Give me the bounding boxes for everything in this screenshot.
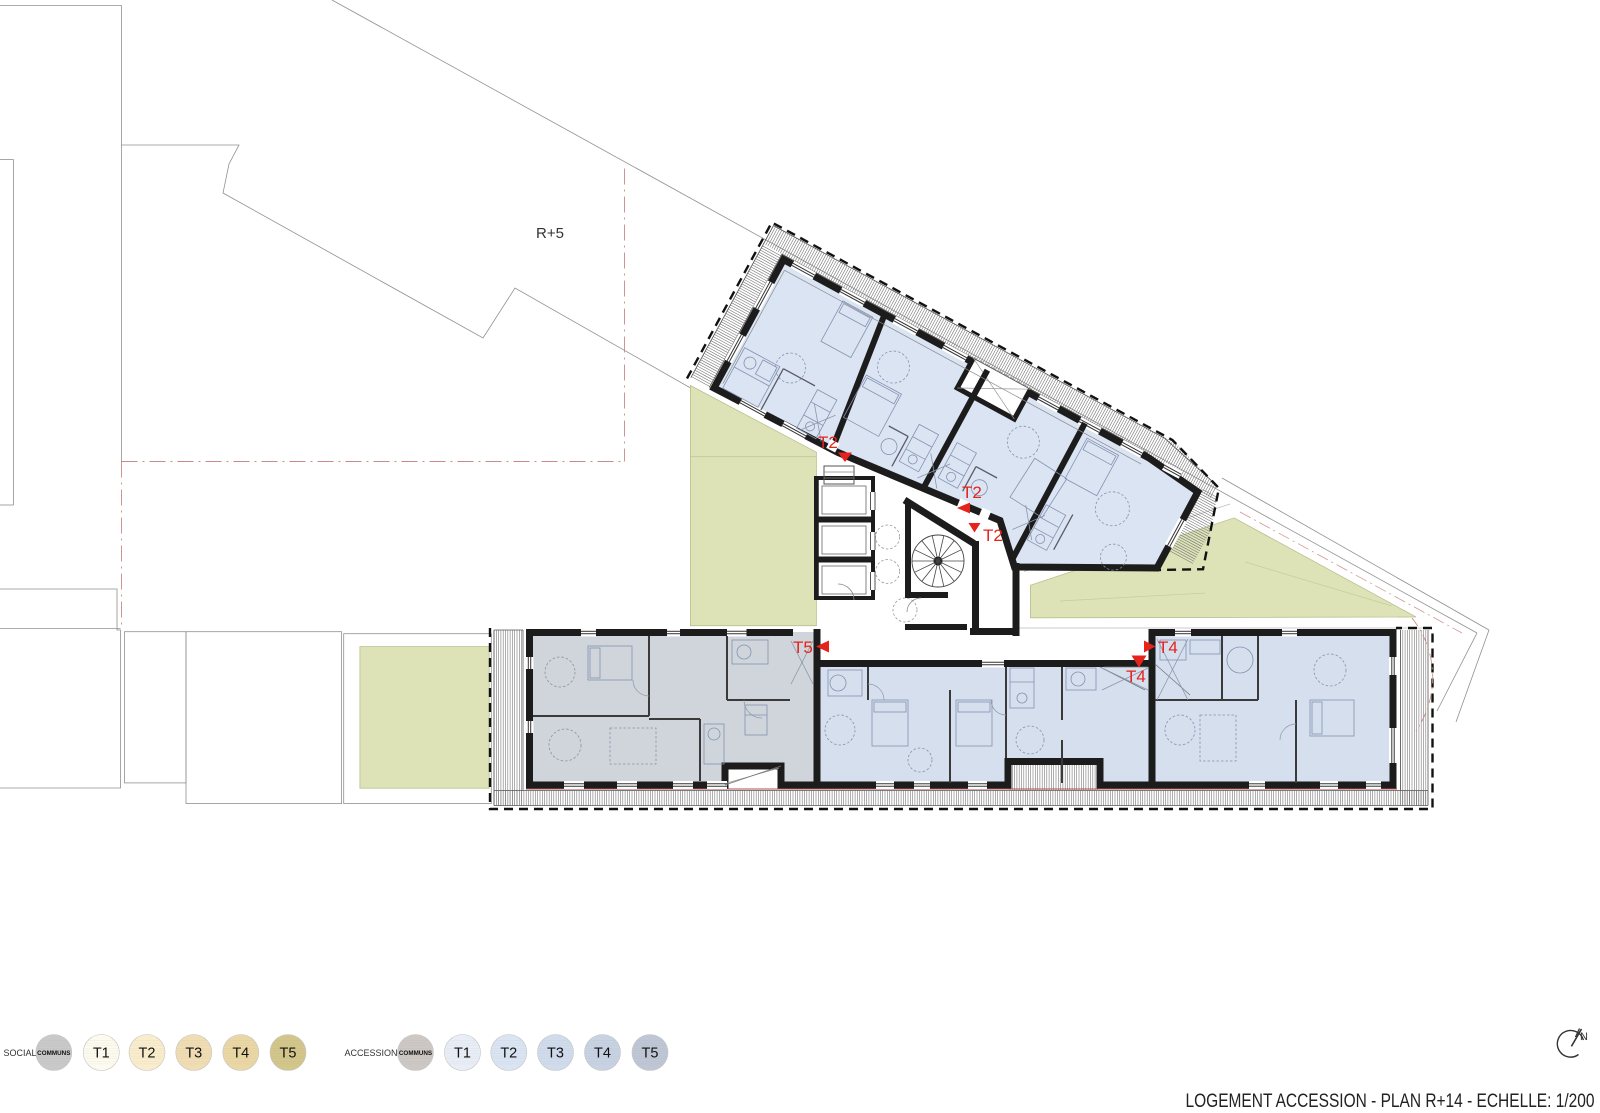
svg-text:T4: T4 — [594, 1046, 611, 1062]
svg-text:T5: T5 — [793, 638, 813, 657]
svg-text:SOCIAL: SOCIAL — [4, 1048, 37, 1058]
svg-text:T1: T1 — [93, 1046, 110, 1062]
svg-text:N: N — [1580, 1031, 1588, 1043]
svg-text:T5: T5 — [280, 1046, 297, 1062]
svg-text:T2: T2 — [139, 1046, 156, 1062]
svg-text:COMMUNS: COMMUNS — [37, 1050, 70, 1057]
svg-text:T4: T4 — [1126, 667, 1146, 686]
svg-text:T4: T4 — [232, 1046, 249, 1062]
svg-text:COMMUNS: COMMUNS — [399, 1050, 432, 1057]
svg-text:T5: T5 — [642, 1046, 659, 1062]
svg-text:T2: T2 — [962, 483, 982, 502]
svg-text:T2: T2 — [500, 1046, 517, 1062]
svg-text:LOGEMENT ACCESSION - PLAN R+14: LOGEMENT ACCESSION - PLAN R+14 - ECHELLE… — [1186, 1090, 1595, 1112]
svg-text:T2: T2 — [983, 526, 1003, 545]
svg-text:R+5: R+5 — [536, 225, 564, 242]
svg-text:T2: T2 — [818, 433, 838, 452]
svg-text:T1: T1 — [454, 1046, 471, 1062]
svg-text:T3: T3 — [547, 1046, 564, 1062]
svg-text:T4: T4 — [1158, 638, 1178, 657]
svg-text:ACCESSION: ACCESSION — [345, 1048, 398, 1058]
svg-text:T3: T3 — [185, 1046, 202, 1062]
